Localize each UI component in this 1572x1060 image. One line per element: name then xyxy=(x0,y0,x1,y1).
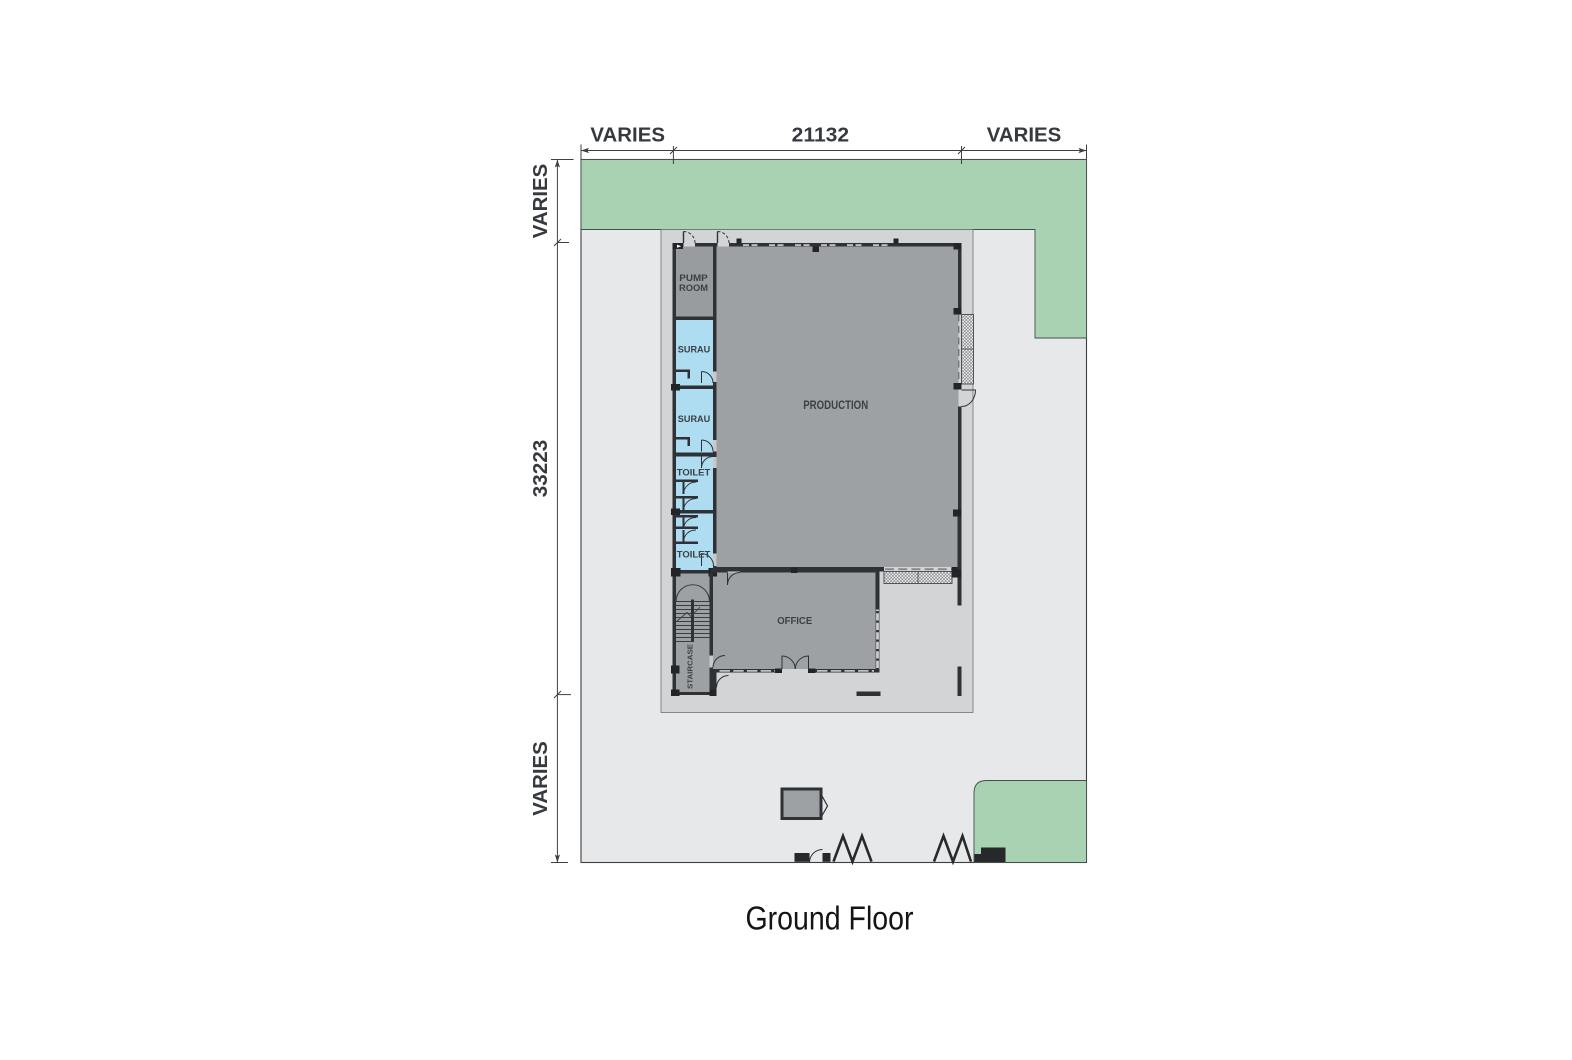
svg-text:SURAU: SURAU xyxy=(678,414,711,425)
svg-text:STAIRCASE: STAIRCASE xyxy=(685,644,694,689)
svg-text:VARIES: VARIES xyxy=(530,164,552,239)
svg-text:Ground Floor: Ground Floor xyxy=(746,901,914,938)
svg-text:OFFICE: OFFICE xyxy=(777,616,812,627)
svg-text:TOILET: TOILET xyxy=(677,550,711,561)
svg-text:VARIES: VARIES xyxy=(590,125,665,147)
svg-text:SURAU: SURAU xyxy=(678,345,711,356)
svg-text:21132: 21132 xyxy=(792,125,850,147)
svg-text:VARIES: VARIES xyxy=(987,125,1062,147)
svg-text:VARIES: VARIES xyxy=(530,741,552,816)
svg-text:33223: 33223 xyxy=(530,440,552,498)
svg-text:PRODUCTION: PRODUCTION xyxy=(803,398,868,412)
svg-text:ROOM: ROOM xyxy=(679,283,708,294)
svg-text:TOILET: TOILET xyxy=(677,468,711,479)
